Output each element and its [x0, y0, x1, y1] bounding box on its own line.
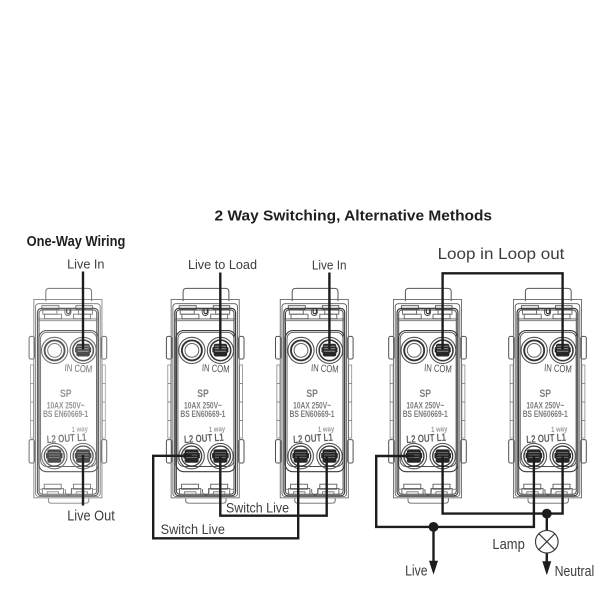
- svg-text:Live In: Live In: [67, 256, 104, 271]
- svg-text:Switch Live: Switch Live: [226, 500, 289, 515]
- svg-text:Live Out: Live Out: [67, 508, 115, 525]
- svg-text:Live In: Live In: [312, 257, 347, 272]
- svg-text:Loop in Loop out: Loop in Loop out: [438, 246, 565, 263]
- svg-text:Switch Live: Switch Live: [161, 522, 225, 537]
- svg-text:Live to Load: Live to Load: [188, 257, 257, 272]
- svg-text:Neutral: Neutral: [555, 563, 595, 580]
- svg-text:2 Way Switching, Alternative M: 2 Way Switching, Alternative Methods: [215, 208, 493, 224]
- svg-text:Lamp: Lamp: [492, 536, 524, 553]
- svg-text:Live: Live: [405, 562, 427, 579]
- svg-text:One-Way Wiring: One-Way Wiring: [27, 234, 126, 250]
